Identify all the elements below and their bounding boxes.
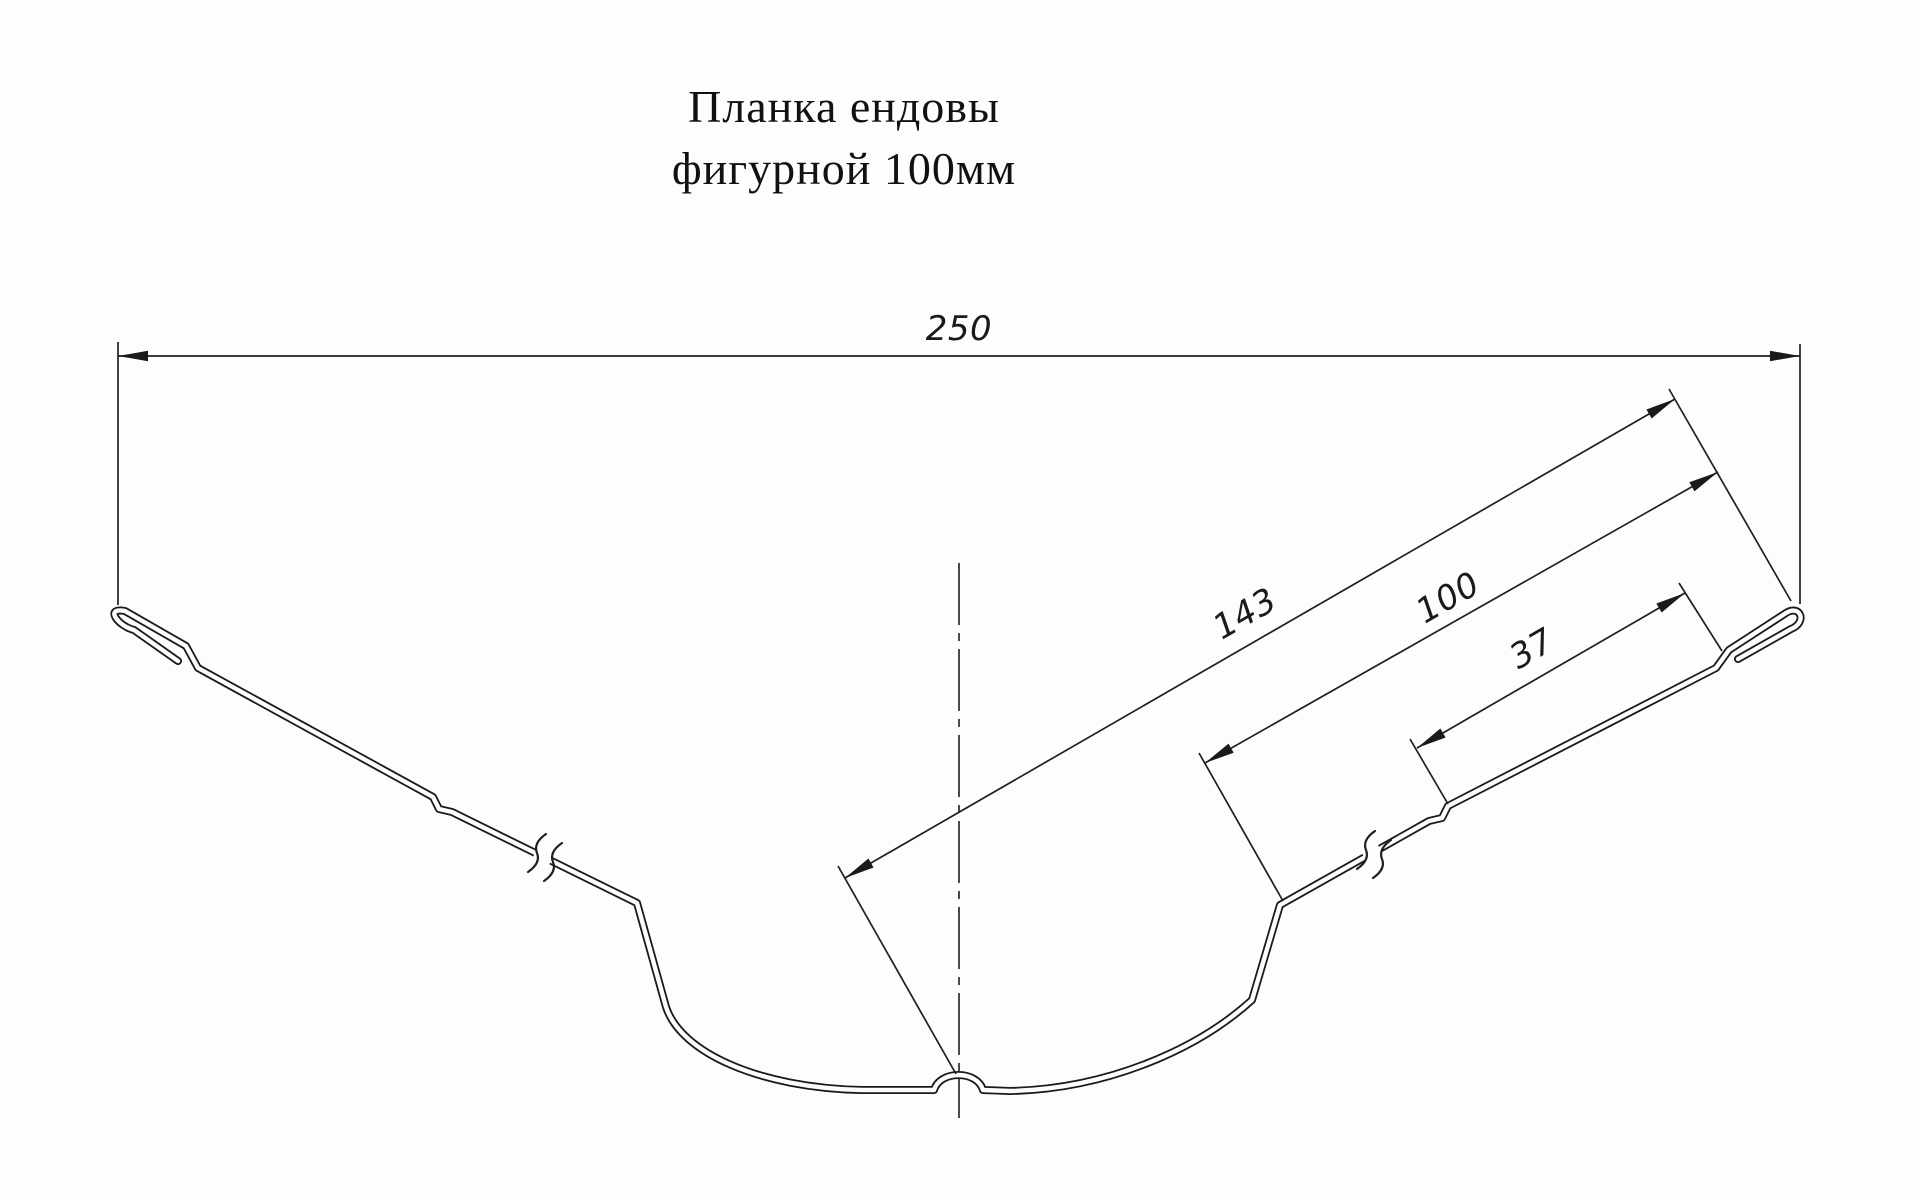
valley-profile-outline [114, 610, 1800, 1091]
extension-line-37-right [1679, 583, 1722, 651]
title-line-1: Планка ендовы [688, 81, 1000, 132]
drawing-canvas: 250 143 100 37 Планка ендовы фигурной 10… [0, 0, 1920, 1200]
extension-line-37-left [1410, 739, 1448, 804]
dimension-label-250: 250 [926, 309, 992, 349]
drawing-title: Планка ендовы фигурной 100мм [672, 81, 1016, 194]
dimension-label-143: 143 [1206, 580, 1284, 648]
dimension-label-100: 100 [1409, 564, 1487, 632]
dimension-line-37 [1417, 593, 1685, 748]
extension-line-100-left [1199, 753, 1283, 901]
extension-line-hem-shared [1669, 389, 1791, 601]
title-line-2: фигурной 100мм [672, 143, 1016, 194]
drawing-sheet: 250 143 100 37 Планка ендовы фигурной 10… [0, 0, 1920, 1200]
extension-line-143-vertex [838, 866, 956, 1074]
